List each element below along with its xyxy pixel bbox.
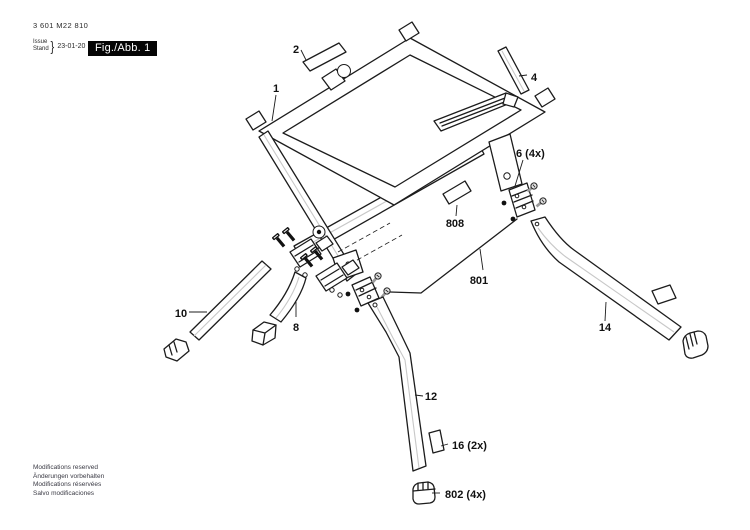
callout-16: 16 (2x): [452, 440, 487, 452]
leg-part-12: [368, 297, 426, 471]
notice-line-en: Modifications reserved: [33, 464, 104, 473]
foot-cap-leg-8: [252, 322, 276, 345]
callout-14: 14: [599, 322, 612, 334]
callout-1: 1: [273, 83, 279, 95]
callout-808: 808: [446, 218, 464, 230]
assembly-dash-line: [350, 235, 402, 264]
notice-line-es: Salvo modificaciones: [33, 490, 104, 499]
modifications-notice: Modifications reserved Änderungen vorbeh…: [33, 464, 104, 498]
foot-cap-leg-10: [164, 339, 189, 361]
strip-part-4: [498, 47, 529, 94]
callout-12: 12: [425, 391, 437, 403]
callout-6: 6 (4x): [516, 148, 545, 160]
foot-cap-leg-14: [683, 331, 708, 358]
strip-near-leg-14: [652, 285, 676, 304]
sticker-part-808: [443, 181, 471, 204]
callout-802: 802 (4x): [445, 489, 486, 501]
pivot-bolt: [313, 226, 325, 238]
leg-part-8: [270, 272, 306, 322]
callout-10: 10: [175, 308, 187, 320]
notice-line-fr: Modifications réservées: [33, 481, 104, 490]
hanging-plate: [489, 134, 522, 191]
foot-cap-part-802: [413, 482, 435, 504]
latch-ring: [338, 65, 351, 78]
strip-part-16: [429, 430, 444, 453]
exploded-diagram: 1 2 4 6 (4x) 8 10 12 14 16 (2x) 801 802 …: [0, 0, 750, 530]
parts-diagram-page: 3 601 M22 810 Issue Stand } 23-01-20 Fig…: [0, 0, 750, 530]
kit-outline-801: [390, 219, 517, 293]
callout-4: 4: [531, 72, 538, 84]
callout-8: 8: [293, 322, 299, 334]
callout-2: 2: [293, 44, 299, 56]
callout-801: 801: [470, 275, 488, 287]
notice-line-de: Änderungen vorbehalten: [33, 473, 104, 482]
